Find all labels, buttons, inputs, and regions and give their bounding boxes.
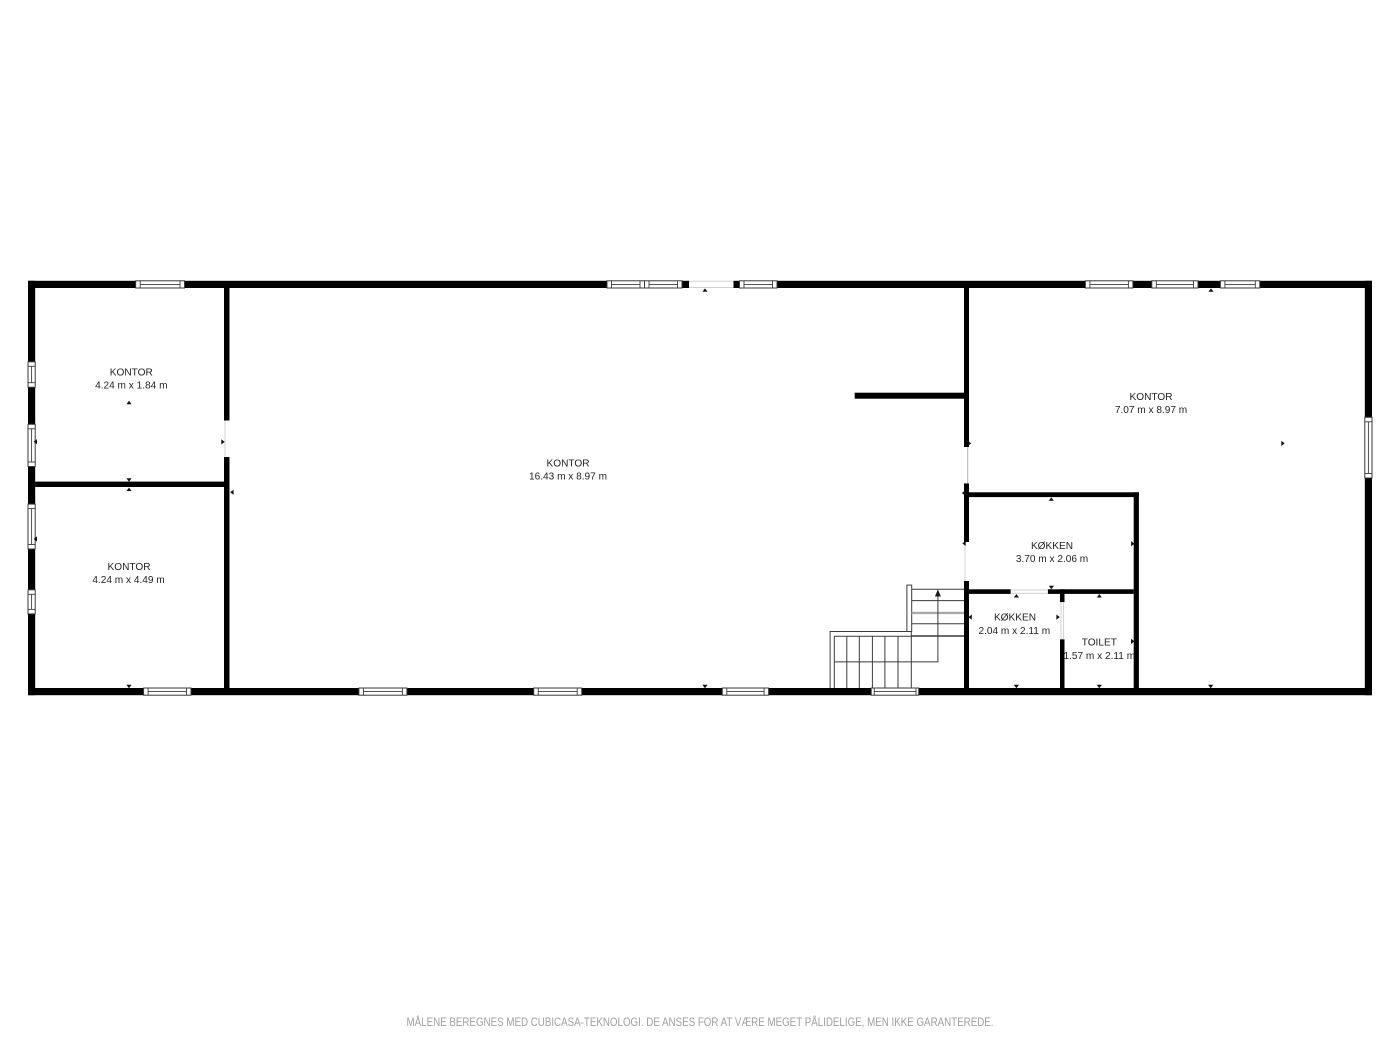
svg-text:KØKKEN: KØKKEN	[1031, 541, 1073, 552]
svg-text:4.24 m x 1.84 m: 4.24 m x 1.84 m	[95, 381, 167, 392]
svg-text:MÅLENE BEREGNES MED CUBICASA-T: MÅLENE BEREGNES MED CUBICASA-TEKNOLOGI. …	[407, 1014, 994, 1029]
svg-text:7.07 m x 8.97 m: 7.07 m x 8.97 m	[1115, 405, 1187, 416]
svg-text:KONTOR: KONTOR	[108, 562, 151, 573]
svg-text:1.57 m x 2.11 m: 1.57 m x 2.11 m	[1063, 651, 1135, 662]
svg-text:TOILET: TOILET	[1082, 638, 1117, 649]
svg-text:2.04 m x 2.11 m: 2.04 m x 2.11 m	[978, 626, 1050, 637]
svg-text:KØKKEN: KØKKEN	[994, 613, 1036, 624]
svg-text:4.24 m x 4.49 m: 4.24 m x 4.49 m	[92, 575, 164, 586]
svg-text:3.70 m x 2.06 m: 3.70 m x 2.06 m	[1016, 554, 1088, 565]
svg-text:KONTOR: KONTOR	[1130, 392, 1173, 403]
svg-text:16.43 m x 8.97 m: 16.43 m x 8.97 m	[529, 472, 607, 483]
svg-text:KONTOR: KONTOR	[110, 368, 153, 379]
svg-text:KONTOR: KONTOR	[547, 459, 590, 470]
